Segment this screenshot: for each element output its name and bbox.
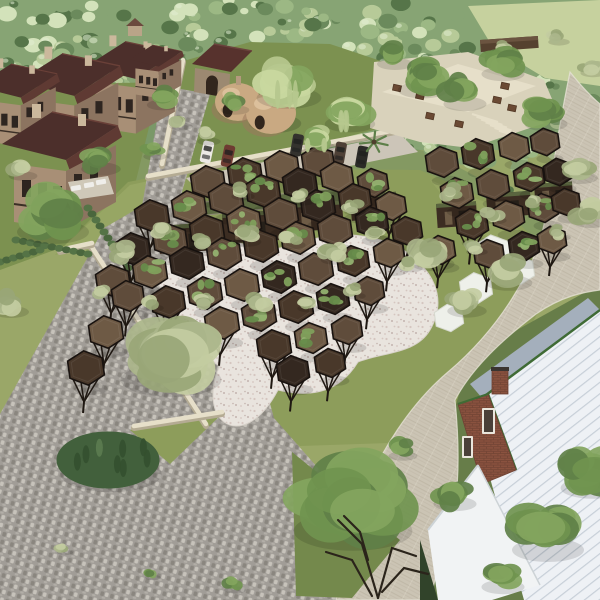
villa-window <box>139 76 143 84</box>
villa-window <box>153 78 157 86</box>
forest-tree <box>412 27 427 39</box>
forest-cabin <box>128 26 142 36</box>
forest-tree <box>47 13 67 28</box>
forest-tree <box>278 19 287 26</box>
forest-tree <box>362 5 381 20</box>
forest-tree <box>441 29 459 43</box>
villa-window <box>126 99 133 112</box>
forest-tree <box>331 11 346 22</box>
tree <box>121 316 222 397</box>
house-chimney <box>492 370 508 394</box>
forest-tree <box>73 35 83 43</box>
forest-tree <box>222 3 238 15</box>
hex-canopy-plant <box>366 213 386 222</box>
forest-tree <box>202 15 216 26</box>
forest-tree <box>178 37 197 51</box>
picnic-table <box>425 112 434 120</box>
picnic-table <box>454 120 463 128</box>
hedge <box>84 251 93 258</box>
forest-tree <box>450 10 465 22</box>
tree <box>557 446 600 499</box>
forest-tree <box>408 44 422 55</box>
picnic-table <box>507 104 516 112</box>
forest-tree <box>257 3 273 15</box>
forest-tree <box>318 14 329 22</box>
hedge <box>96 223 105 230</box>
forest-tree <box>161 21 179 35</box>
villa-window <box>12 116 18 128</box>
hedge <box>36 247 45 254</box>
tree <box>505 503 584 562</box>
forest-tree <box>301 7 311 15</box>
forest-tree <box>71 10 84 20</box>
forest-tree <box>378 14 397 29</box>
forest-tree <box>152 32 168 44</box>
forest-tree <box>182 3 198 16</box>
forest-tree <box>397 31 409 40</box>
villa-window <box>1 114 7 126</box>
forest-tree <box>264 26 276 36</box>
hedge <box>88 211 97 218</box>
forest-tree <box>146 17 163 30</box>
forest-tree <box>240 8 248 14</box>
hedge <box>100 229 109 236</box>
picnic-table <box>492 96 501 104</box>
villa-window <box>146 77 150 85</box>
forest-tree <box>425 39 441 52</box>
hedge <box>104 235 113 242</box>
forest-tree <box>116 10 131 22</box>
forest-tree <box>36 14 50 25</box>
hedge <box>84 205 93 212</box>
forest-tree <box>286 18 295 25</box>
forest-tree <box>193 29 208 41</box>
forest-tree <box>15 36 29 47</box>
aerial-resort-render <box>0 0 600 600</box>
forest-tree <box>87 36 106 50</box>
forest-tree <box>224 29 236 39</box>
forest-tree <box>82 12 95 22</box>
forest-tree <box>275 0 293 14</box>
forest-tree <box>85 1 99 12</box>
forest-tree <box>9 1 18 8</box>
hedge <box>92 217 101 224</box>
forest-tree <box>361 24 380 39</box>
forest-tree <box>249 31 265 44</box>
tree <box>481 563 524 594</box>
picnic-table <box>500 82 509 90</box>
